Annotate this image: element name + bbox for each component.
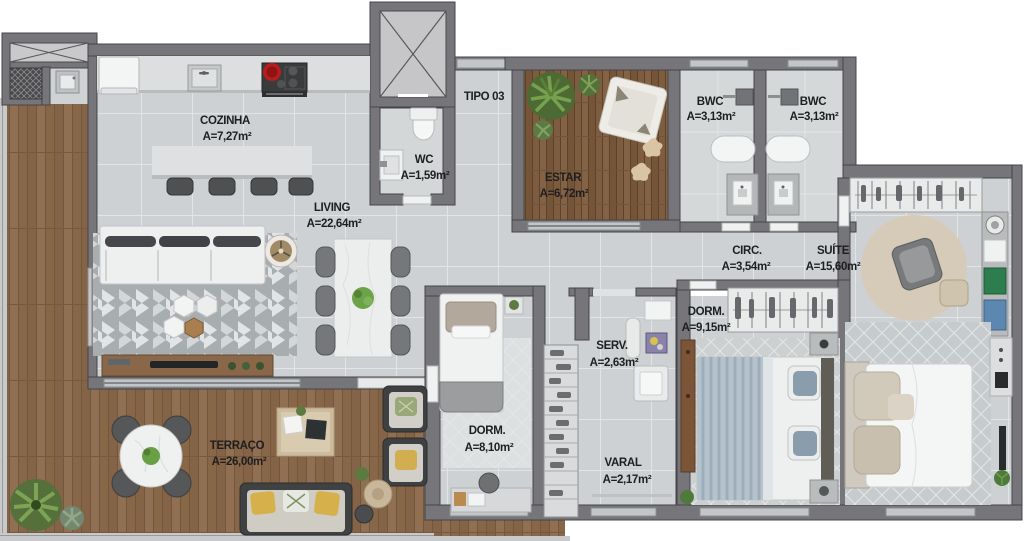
svg-text:BWC: BWC (697, 96, 723, 108)
svg-text:DORM.: DORM. (688, 306, 725, 318)
svg-text:A=1,59m²: A=1,59m² (401, 170, 450, 182)
svg-text:WC: WC (415, 154, 434, 166)
svg-text:SUÍTE: SUÍTE (817, 244, 850, 257)
svg-text:VARAL: VARAL (604, 457, 641, 469)
svg-text:A=3,13m²: A=3,13m² (790, 111, 839, 123)
svg-text:TIPO 03: TIPO 03 (464, 91, 504, 103)
svg-text:A=22,64m²: A=22,64m² (307, 218, 362, 230)
svg-text:A=3,54m²: A=3,54m² (722, 261, 771, 273)
svg-text:TERRAÇO: TERRAÇO (210, 440, 265, 452)
svg-text:A=9,15m²: A=9,15m² (682, 322, 731, 334)
svg-text:A=6,72m²: A=6,72m² (540, 188, 589, 200)
svg-text:A=15,60m²: A=15,60m² (806, 261, 861, 273)
svg-text:A=8,10m²: A=8,10m² (465, 442, 514, 454)
svg-text:A=2,63m²: A=2,63m² (590, 357, 639, 369)
svg-text:A=3,13m²: A=3,13m² (687, 111, 736, 123)
svg-text:A=26,00m²: A=26,00m² (212, 456, 267, 468)
svg-text:SERV.: SERV. (596, 340, 628, 352)
svg-text:A=2,17m²: A=2,17m² (603, 474, 652, 486)
svg-text:A=7,27m²: A=7,27m² (203, 131, 252, 143)
svg-text:CIRC.: CIRC. (732, 245, 762, 257)
svg-text:ESTAR: ESTAR (545, 172, 582, 184)
svg-text:LIVING: LIVING (314, 202, 351, 214)
svg-text:BWC: BWC (800, 96, 826, 108)
svg-text:DORM.: DORM. (469, 425, 506, 437)
svg-text:COZINHA: COZINHA (200, 115, 250, 127)
